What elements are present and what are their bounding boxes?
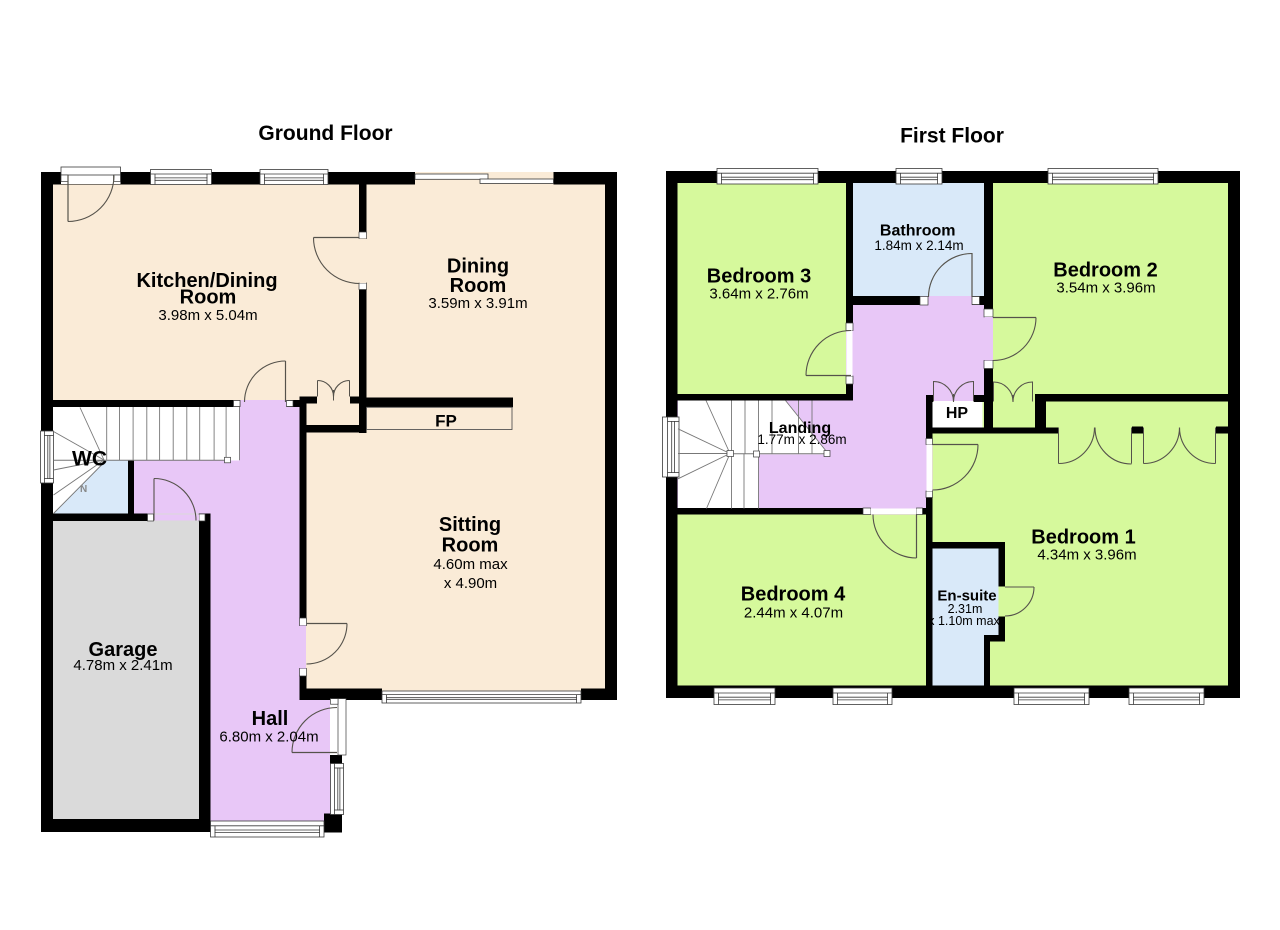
svg-text:x 4.90m: x 4.90m — [444, 575, 497, 592]
svg-text:Room: Room — [180, 287, 237, 309]
svg-text:3.98m x 5.04m: 3.98m x 5.04m — [158, 307, 257, 324]
svg-text:Bedroom 4: Bedroom 4 — [741, 584, 846, 606]
svg-text:Bedroom 3: Bedroom 3 — [707, 266, 811, 288]
svg-text:4.78m x 2.41m: 4.78m x 2.41m — [73, 657, 172, 674]
svg-text:N: N — [80, 484, 87, 495]
svg-text:4.60m max: 4.60m max — [433, 556, 508, 573]
svg-text:4.34m x 3.96m: 4.34m x 3.96m — [1037, 547, 1136, 564]
svg-text:1.77m x 2.86m: 1.77m x 2.86m — [757, 432, 846, 447]
svg-text:WC: WC — [72, 448, 107, 471]
svg-text:Hall: Hall — [252, 708, 289, 730]
svg-text:Room: Room — [442, 535, 499, 557]
svg-text:Bedroom 1: Bedroom 1 — [1031, 527, 1135, 549]
svg-text:Bathroom: Bathroom — [880, 223, 956, 240]
svg-text:First Floor: First Floor — [900, 125, 1004, 148]
svg-text:Bedroom 2: Bedroom 2 — [1053, 260, 1157, 282]
svg-text:HP: HP — [946, 405, 969, 422]
svg-text:Ground Floor: Ground Floor — [258, 122, 392, 145]
svg-text:2.44m x 4.07m: 2.44m x 4.07m — [744, 605, 843, 622]
svg-text:Room: Room — [450, 275, 507, 297]
svg-text:3.54m x 3.96m: 3.54m x 3.96m — [1056, 280, 1155, 297]
svg-text:3.59m x 3.91m: 3.59m x 3.91m — [428, 295, 527, 312]
svg-text:1.84m x 2.14m: 1.84m x 2.14m — [874, 238, 963, 253]
svg-text:Sitting: Sitting — [439, 514, 501, 536]
svg-text:3.64m x 2.76m: 3.64m x 2.76m — [709, 286, 808, 303]
svg-text:6.80m x 2.04m: 6.80m x 2.04m — [219, 729, 318, 746]
svg-text:FP: FP — [435, 412, 457, 431]
svg-text:x 1.10m max: x 1.10m max — [928, 614, 1000, 628]
